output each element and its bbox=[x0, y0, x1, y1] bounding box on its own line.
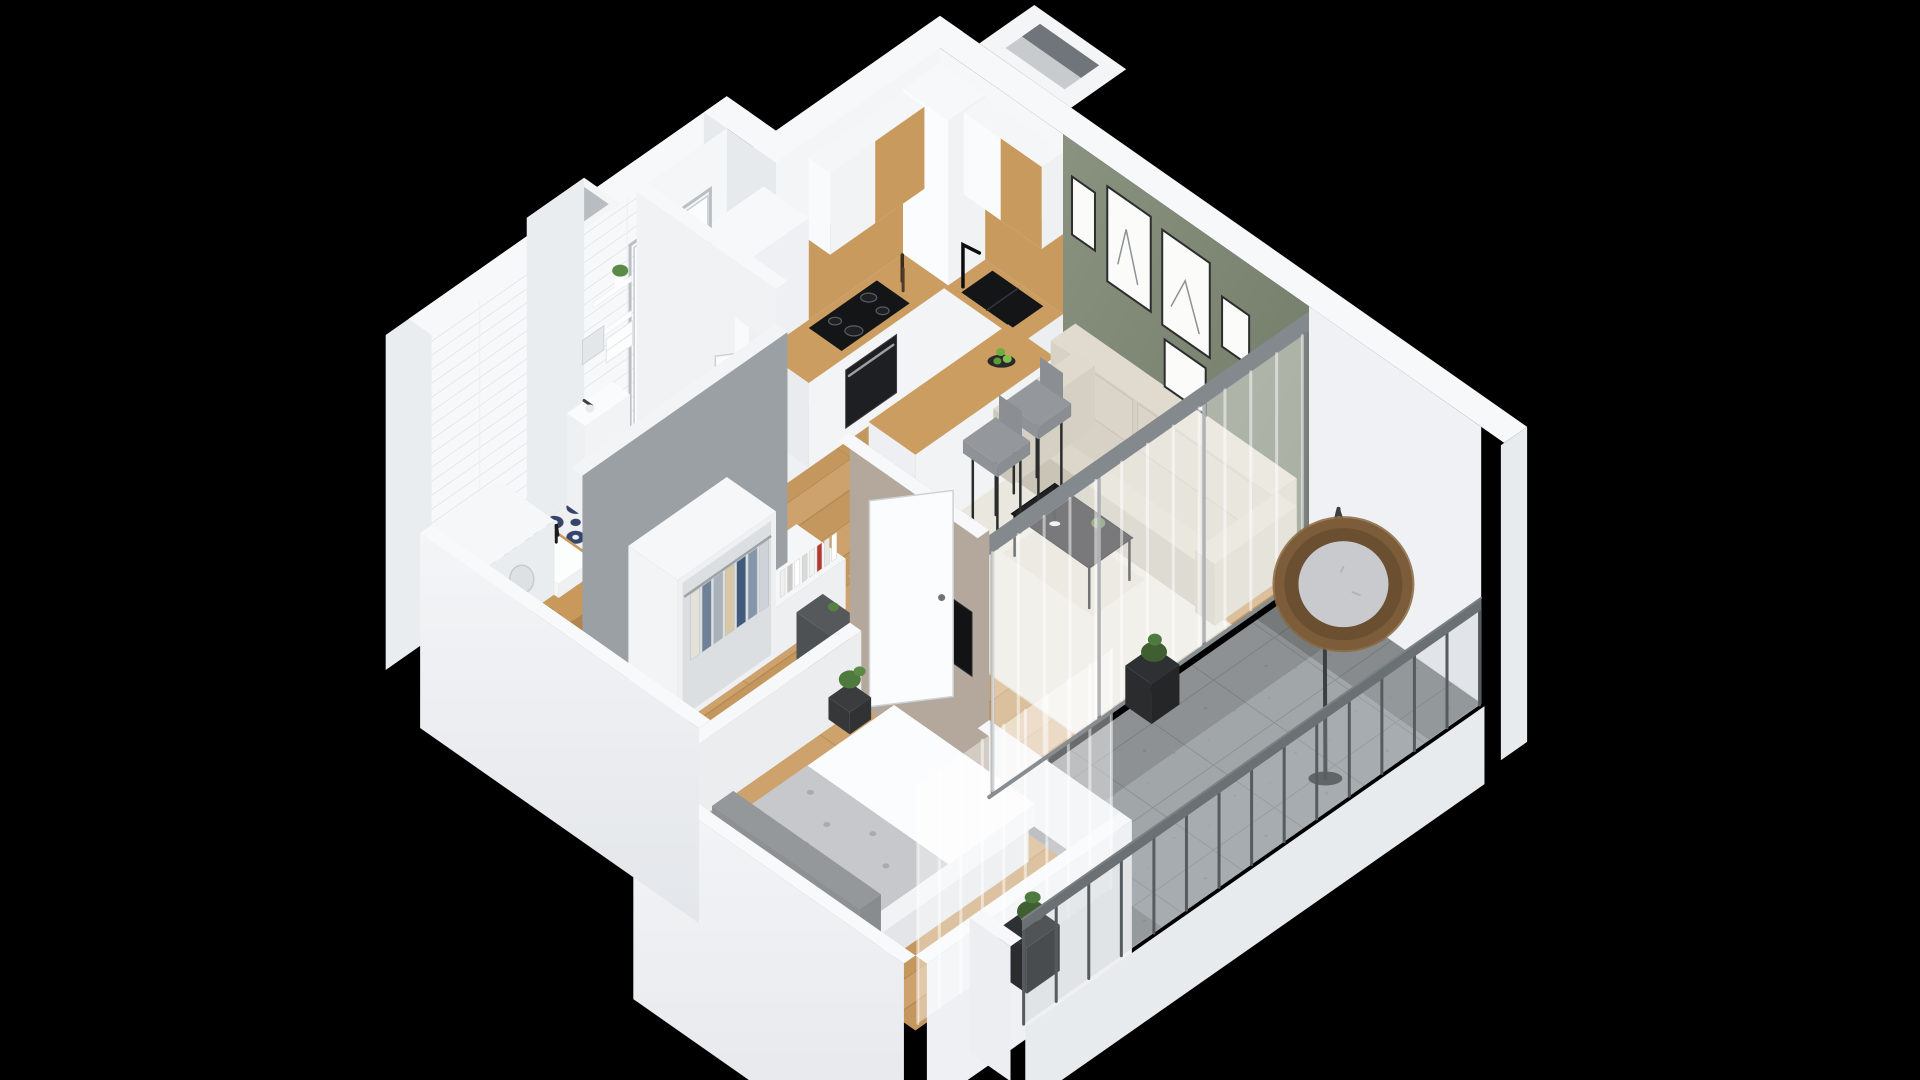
book-6 bbox=[795, 558, 800, 587]
book-5 bbox=[802, 553, 807, 582]
clothes-item-4 bbox=[725, 564, 734, 636]
apartment-isometric-render bbox=[0, 0, 1920, 1080]
clothes-item-2 bbox=[748, 548, 757, 620]
floorplan-stage bbox=[0, 0, 1920, 1080]
bedroom-door-handle bbox=[938, 594, 945, 601]
blanket-dot-1 bbox=[807, 790, 814, 795]
clothes-item-6 bbox=[702, 580, 711, 652]
blanket-dot-3 bbox=[869, 831, 876, 836]
burner-3 bbox=[829, 317, 842, 325]
exterior-wall-right-face bbox=[1501, 427, 1527, 760]
clothes-item-3 bbox=[737, 556, 746, 628]
clothes-item-7 bbox=[691, 588, 700, 660]
blanket-dot-2 bbox=[823, 822, 830, 827]
book-7 bbox=[787, 563, 792, 592]
book-1 bbox=[832, 532, 837, 561]
fruit-plate bbox=[988, 355, 1016, 368]
bedroom-plant-2 bbox=[854, 666, 866, 676]
burner-2 bbox=[876, 307, 889, 315]
book-4 bbox=[810, 548, 815, 577]
book-8 bbox=[780, 568, 785, 597]
burner-1 bbox=[861, 293, 877, 302]
kitchen-upper-cabinets-nw bbox=[809, 158, 830, 255]
shoe-cabinet-plant bbox=[828, 602, 839, 611]
apple-2 bbox=[1003, 355, 1012, 363]
burner-4 bbox=[845, 326, 863, 336]
apple-3 bbox=[993, 358, 1001, 365]
clothes-item-5 bbox=[714, 572, 723, 644]
blanket-dot-4 bbox=[882, 863, 889, 868]
kitchen-upper-cabinets-ne bbox=[1042, 152, 1063, 249]
egg-chair-cushion bbox=[1298, 541, 1388, 627]
book-2 bbox=[824, 537, 829, 566]
book-3 bbox=[817, 543, 822, 572]
apple-1 bbox=[996, 348, 1005, 356]
balcony-plant-2b bbox=[1025, 891, 1041, 903]
clothes-item-1 bbox=[760, 540, 769, 612]
bath-shelf-plant bbox=[612, 265, 628, 277]
vanity-faucet bbox=[556, 524, 558, 542]
balcony-plant-1b bbox=[1148, 634, 1162, 646]
toilet-paper-roll bbox=[585, 405, 594, 413]
